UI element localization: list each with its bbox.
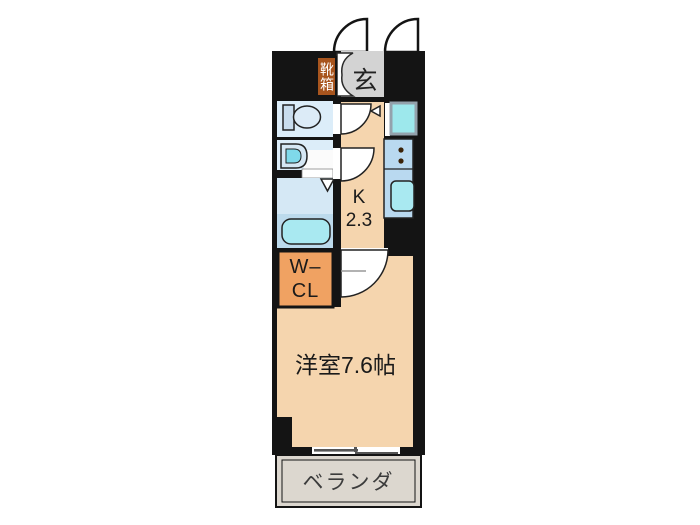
vanity-counter	[304, 150, 333, 170]
kitchen-sink-icon	[391, 181, 414, 211]
shoe-box	[317, 57, 336, 96]
entrance-door-arc-right	[385, 19, 418, 52]
toilet-tank-icon	[283, 105, 294, 130]
stove-burner-dot-2	[398, 158, 403, 163]
bathtub-icon	[282, 219, 330, 244]
sliding-window-sash-left	[314, 449, 358, 452]
room-corner-pillar	[272, 417, 292, 447]
stove-burner-dot-1	[398, 147, 403, 152]
balcony	[276, 455, 421, 507]
sliding-window-latch	[354, 447, 357, 452]
toilet-door-opening	[333, 104, 341, 134]
entrance-door-arc-left	[334, 19, 367, 52]
floorplan-page: 玄 靴箱 K 2.3 W– CL 洋室7.6帖 ベランダ	[0, 0, 700, 525]
toilet-bowl-icon	[294, 106, 321, 128]
walk-in-closet	[278, 251, 333, 307]
washer-pan-icon	[391, 103, 416, 134]
floorplan-drawing	[0, 0, 700, 525]
washer-nook-gap	[385, 103, 390, 136]
bathroom-door	[302, 169, 333, 178]
washbasin-door-opening	[333, 148, 341, 179]
washbasin-bowl-icon	[286, 149, 301, 163]
